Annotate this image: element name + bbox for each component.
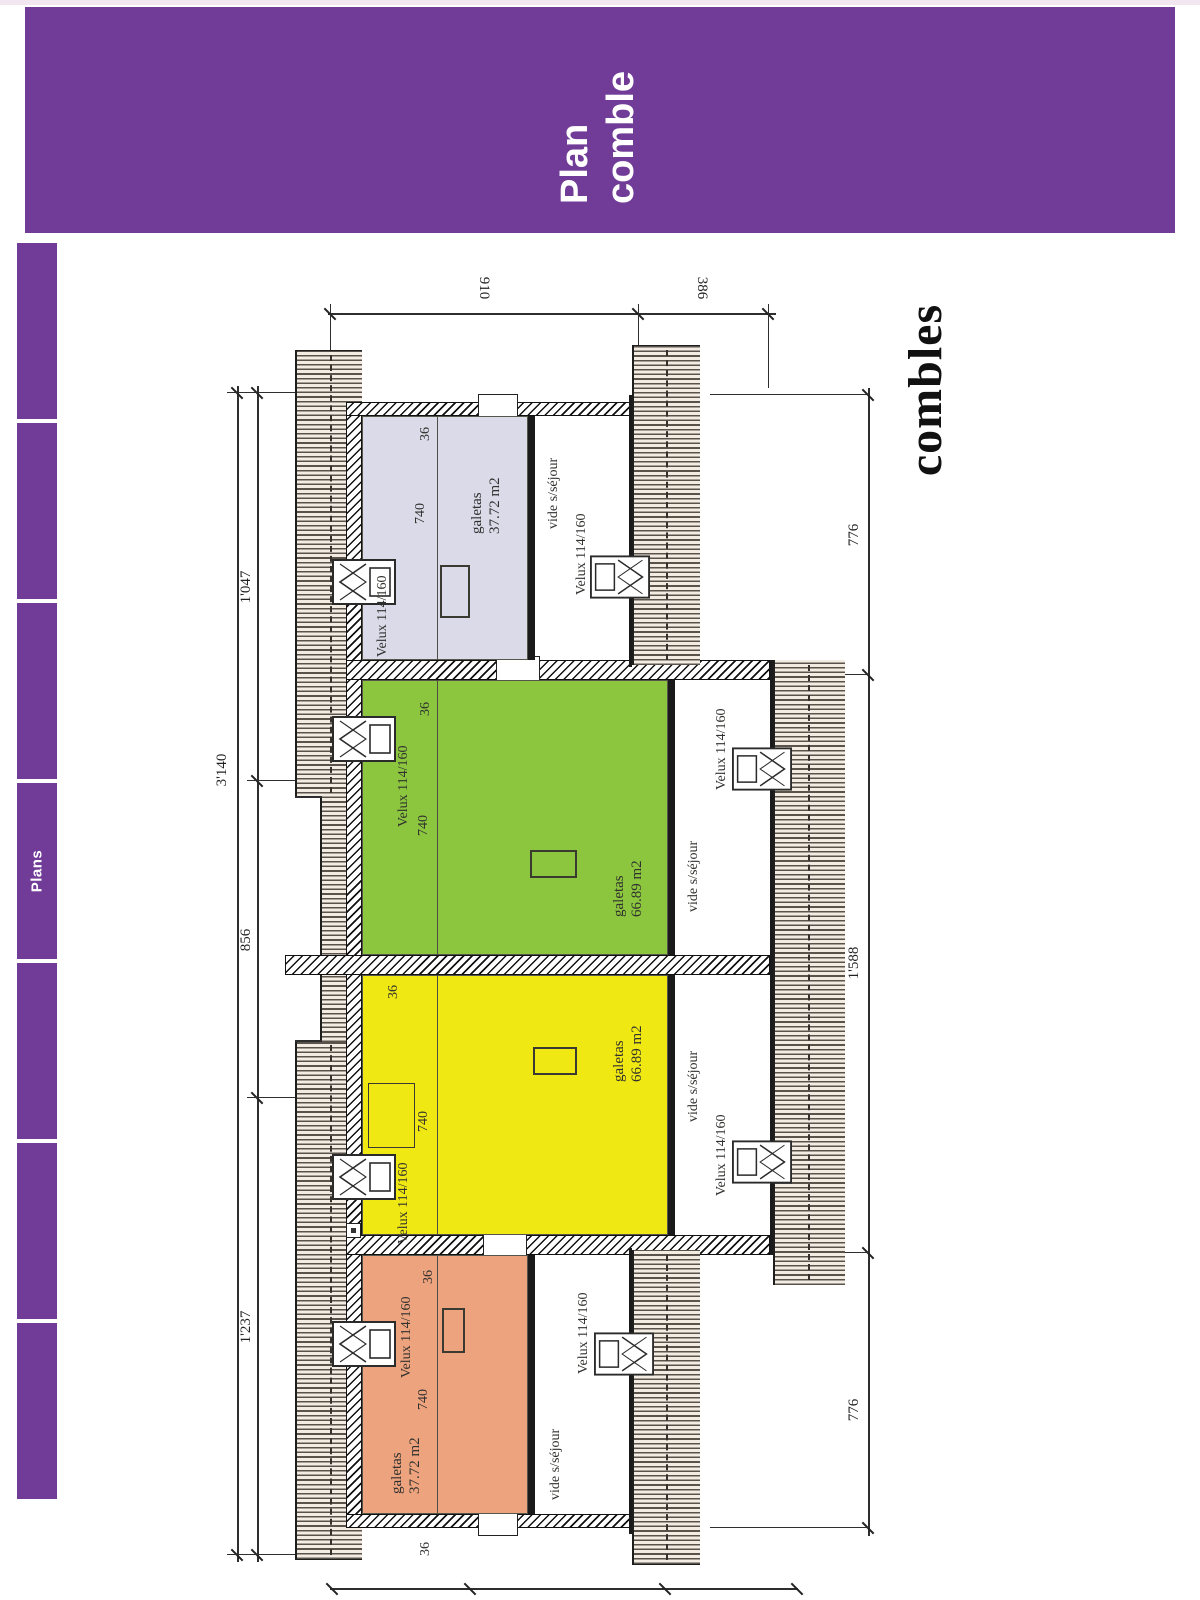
roof-batten-line <box>666 1255 668 1560</box>
wall-thickness-label: 36 <box>418 702 434 716</box>
dim-label-1047: 1'047 <box>238 527 255 647</box>
sidebar-segment-5 <box>17 963 57 1139</box>
room-label: galetas66.89 m2 <box>610 1025 646 1082</box>
velux-window-icon <box>332 716 396 762</box>
headroom-line <box>437 680 438 955</box>
page-title-line2: comble <box>598 34 644 204</box>
room-label: galetas37.72 m2 <box>388 1437 424 1494</box>
dim-line-top <box>257 386 259 1562</box>
headroom-line <box>437 975 438 1235</box>
room-galetas-orange <box>362 1255 528 1514</box>
dim-label-total: 3'140 <box>214 700 231 840</box>
velux-window-icon <box>732 746 792 792</box>
sidebar-segment-7 <box>17 1323 57 1499</box>
plan-caption: combles <box>898 280 953 500</box>
velux-window-icon <box>732 1139 792 1185</box>
wall-room-rear <box>668 680 675 955</box>
velux-label: Velux 114/160 <box>399 1296 415 1378</box>
dim-line-left <box>330 1588 798 1590</box>
sidebar-segment-3 <box>17 603 57 779</box>
sidebar-segment-2 <box>17 423 57 599</box>
wall-thickness-label: 36 <box>418 1542 434 1556</box>
dim-line-bottom <box>868 388 870 1536</box>
sidebar-segment-1 <box>17 243 57 419</box>
wall-room-rear <box>528 416 535 660</box>
headroom-label: 740 <box>416 1389 432 1410</box>
wall-exterior-left <box>517 1514 632 1528</box>
roof-batten-line <box>666 350 668 660</box>
wall-thickness-label: 36 <box>386 985 402 999</box>
velux-window-icon <box>590 554 650 600</box>
sidebar-segment-plans: Plans <box>17 783 57 959</box>
velux-label: Velux 114/160 <box>574 513 590 595</box>
wall-party-3 <box>346 660 498 680</box>
hatch-marker-dot <box>351 1228 356 1233</box>
void-label: vide s/séjour <box>686 841 702 912</box>
velux-label: Velux 114/160 <box>576 1292 592 1374</box>
dim-label-910: 910 <box>475 266 492 310</box>
velux-label: Velux 114/160 <box>714 708 730 790</box>
dim-label-856: 856 <box>238 880 255 1000</box>
floor-plan: 3'140 1'237 856 1'047 910 386 776 1'588 … <box>180 280 1050 1600</box>
headroom-label: 740 <box>413 503 429 524</box>
velux-label: Velux 114/160 <box>396 745 412 827</box>
headroom-line <box>437 1255 438 1514</box>
stair-shaft <box>368 1083 415 1148</box>
sidebar-label: Plans <box>29 850 46 893</box>
dim-line-side <box>328 313 776 315</box>
wall-exterior-left <box>346 1514 479 1528</box>
page-title-line1: Plan <box>552 34 598 204</box>
chimney <box>442 1308 465 1353</box>
void-label: vide s/séjour <box>686 1051 702 1122</box>
dim-label-1237: 1'237 <box>238 1267 255 1387</box>
page-title: Plan comble <box>552 34 644 204</box>
room-label: galetas37.72 m2 <box>468 477 504 534</box>
headroom-line <box>437 416 438 660</box>
page-top-strip <box>0 0 1200 5</box>
wall-thickness-label: 36 <box>421 1270 437 1284</box>
dim-label-1588: 1'588 <box>846 903 863 1023</box>
velux-window-icon <box>332 1321 396 1367</box>
chimney <box>530 850 577 878</box>
chimney <box>533 1047 577 1075</box>
chimney <box>440 565 470 618</box>
dim-label-386: 386 <box>693 266 710 310</box>
velux-label: Velux 114/160 <box>714 1114 730 1196</box>
wall-party-central <box>285 955 770 975</box>
wall-room-rear <box>668 975 675 1235</box>
sidebar-segment-6 <box>17 1143 57 1319</box>
dim-label-776-right: 776 <box>846 475 863 595</box>
header-banner: Plan comble <box>25 7 1175 233</box>
room-label: galetas66.89 m2 <box>610 860 646 917</box>
wall-room-rear <box>528 1255 535 1514</box>
wall-party-1 <box>346 1235 485 1255</box>
headroom-label: 740 <box>416 1111 432 1132</box>
wall-thickness-label: 36 <box>418 427 434 441</box>
void-label: vide s/séjour <box>546 458 562 529</box>
velux-window-icon <box>594 1331 654 1377</box>
wall-exterior-right <box>517 402 632 416</box>
velux-window-icon <box>332 1154 396 1200</box>
velux-label: Velux 114/160 <box>396 1162 412 1244</box>
roof-batten-line <box>330 1045 332 1555</box>
roof-batten-line <box>808 665 810 1280</box>
void-label: vide s/séjour <box>548 1429 564 1500</box>
headroom-label: 740 <box>416 815 432 836</box>
velux-label: Velux 114/160 <box>375 575 391 657</box>
wall-exterior-right <box>346 402 479 416</box>
dim-label-776-left: 776 <box>846 1350 863 1470</box>
